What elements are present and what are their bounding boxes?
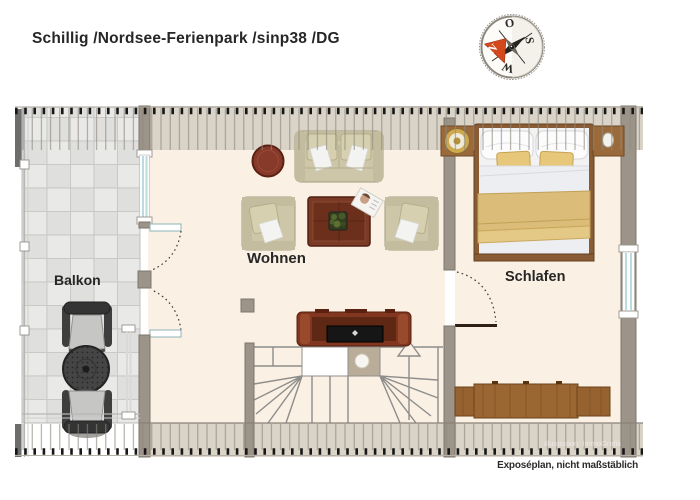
page-title: Schillig /Nordsee-Ferienpark /sinp38 /DG bbox=[32, 30, 340, 48]
room-label-living: Wohnen bbox=[247, 250, 306, 267]
balcony-window bbox=[137, 150, 152, 224]
wall-post bbox=[241, 299, 254, 312]
compass-letter-east: O bbox=[504, 15, 515, 31]
living-room-floor bbox=[148, 150, 445, 423]
watermark: Illustration: ImmoGrafik bbox=[544, 439, 621, 448]
tv-cabinet bbox=[297, 309, 411, 346]
stair-landing bbox=[302, 347, 348, 376]
room-label-bedroom: Schlafen bbox=[505, 269, 565, 285]
plant bbox=[329, 212, 347, 230]
armchair-left bbox=[242, 197, 295, 250]
compass-letter-south: S bbox=[522, 36, 538, 44]
armchair-right bbox=[385, 197, 438, 250]
side-table bbox=[253, 146, 284, 177]
compass-rose: O S W N bbox=[478, 13, 546, 81]
right-wall bbox=[619, 106, 638, 457]
sideboard bbox=[455, 381, 610, 418]
tv bbox=[327, 326, 383, 342]
room-label-balcony: Balkon bbox=[54, 272, 101, 288]
floorplan bbox=[0, 0, 700, 500]
roof-hatch-top bbox=[15, 107, 643, 150]
plan-caption: Exposéplan, nicht maßstäblich bbox=[497, 460, 638, 471]
balcony-table bbox=[63, 346, 109, 392]
floorplan-page: Schillig /Nordsee-Ferienpark /sinp38 /DG… bbox=[0, 0, 700, 500]
